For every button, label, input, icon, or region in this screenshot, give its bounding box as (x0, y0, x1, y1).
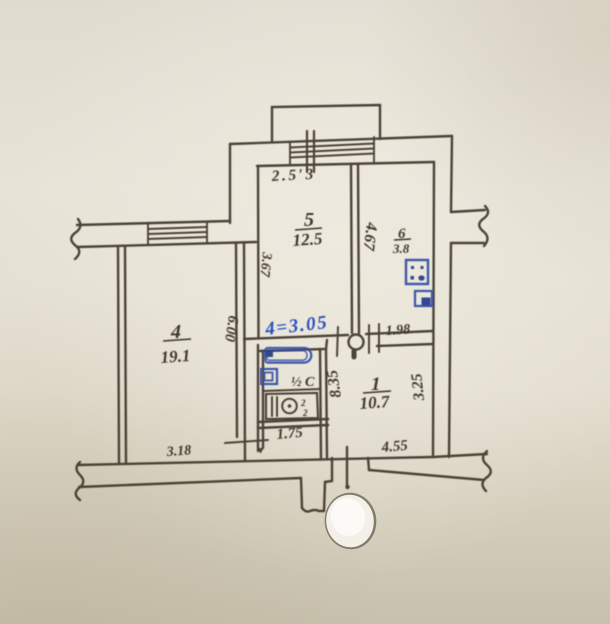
svg-text:12.5: 12.5 (292, 229, 324, 250)
svg-text:3.8: 3.8 (392, 241, 410, 256)
svg-text:4.67: 4.67 (359, 221, 380, 253)
svg-text:4.55: 4.55 (380, 438, 409, 456)
svg-text:3.67: 3.67 (256, 251, 274, 279)
svg-text:5: 5 (304, 209, 314, 231)
svg-text:3.18: 3.18 (165, 443, 191, 460)
svg-text:2: 2 (300, 398, 306, 408)
svg-text:½ C: ½ C (291, 375, 315, 390)
svg-text:1.75: 1.75 (276, 425, 304, 443)
svg-text:10.7: 10.7 (359, 392, 391, 413)
svg-text:1.98: 1.98 (385, 322, 410, 339)
svg-text:2.5′3: 2.5′3 (270, 166, 316, 185)
svg-text:2: 2 (302, 408, 308, 418)
svg-text:3.25: 3.25 (408, 372, 428, 402)
svg-text:19.1: 19.1 (160, 346, 191, 367)
